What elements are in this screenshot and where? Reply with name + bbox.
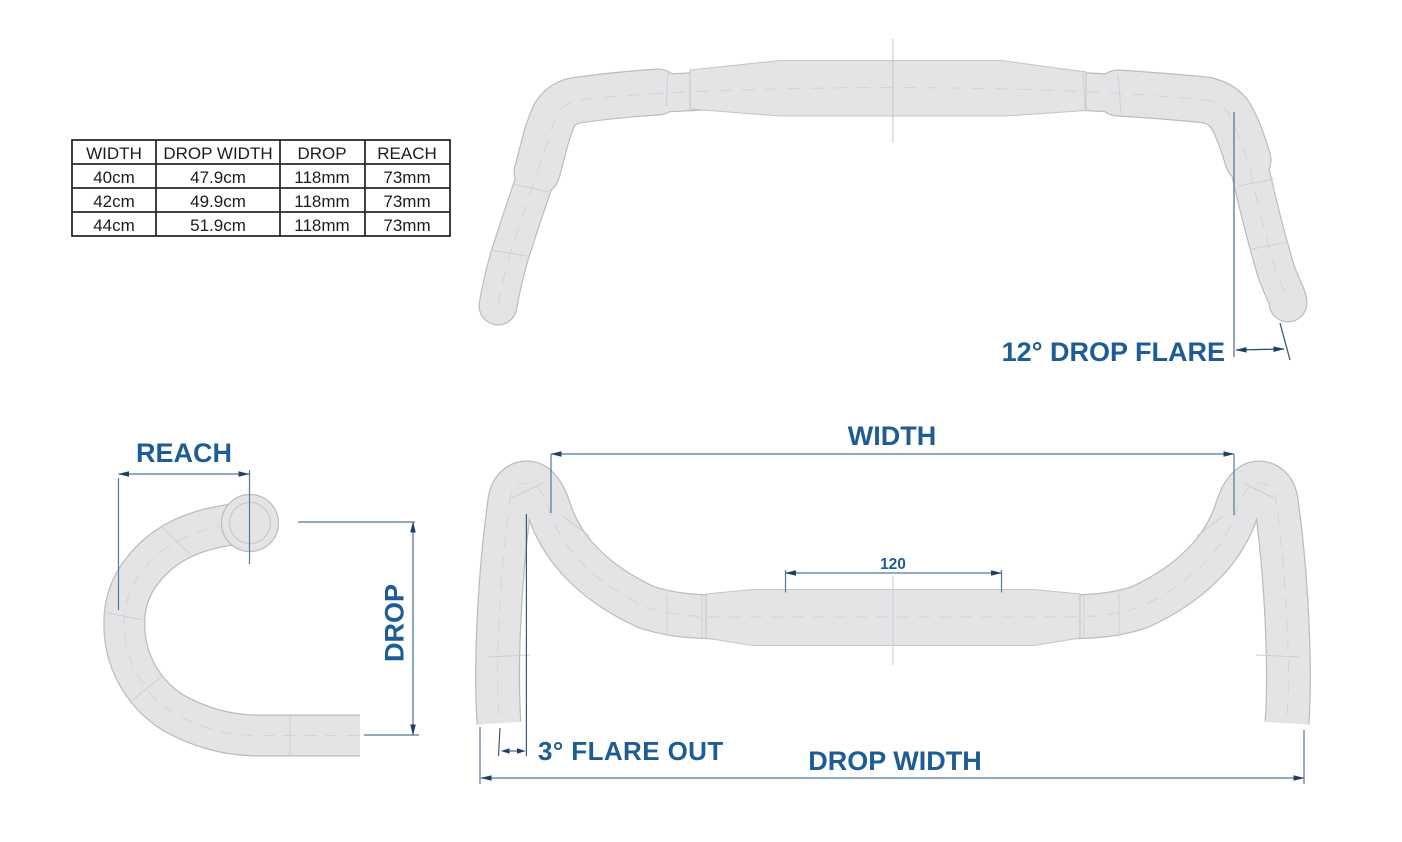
svg-text:118mm: 118mm xyxy=(294,192,349,211)
svg-text:DROP WIDTH: DROP WIDTH xyxy=(163,144,272,163)
svg-text:51.9cm: 51.9cm xyxy=(190,216,246,235)
svg-text:DROP: DROP xyxy=(297,144,346,163)
svg-text:3° FLARE OUT: 3° FLARE OUT xyxy=(538,736,724,766)
svg-text:REACH: REACH xyxy=(377,144,437,163)
svg-text:DROP: DROP xyxy=(380,584,410,662)
svg-text:49.9cm: 49.9cm xyxy=(190,192,246,211)
svg-text:DROP WIDTH: DROP WIDTH xyxy=(808,746,982,776)
svg-text:42cm: 42cm xyxy=(93,192,135,211)
svg-text:40cm: 40cm xyxy=(93,168,135,187)
svg-text:118mm: 118mm xyxy=(294,168,349,187)
svg-text:WIDTH: WIDTH xyxy=(848,421,936,451)
svg-text:WIDTH: WIDTH xyxy=(86,144,142,163)
svg-text:44cm: 44cm xyxy=(93,216,135,235)
svg-text:47.9cm: 47.9cm xyxy=(190,168,246,187)
svg-text:73mm: 73mm xyxy=(383,168,430,187)
svg-text:12° DROP FLARE: 12° DROP FLARE xyxy=(1002,337,1225,367)
svg-text:REACH: REACH xyxy=(136,438,232,468)
svg-text:118mm: 118mm xyxy=(294,216,349,235)
svg-text:73mm: 73mm xyxy=(383,216,430,235)
svg-text:73mm: 73mm xyxy=(383,192,430,211)
svg-text:120: 120 xyxy=(880,556,906,573)
